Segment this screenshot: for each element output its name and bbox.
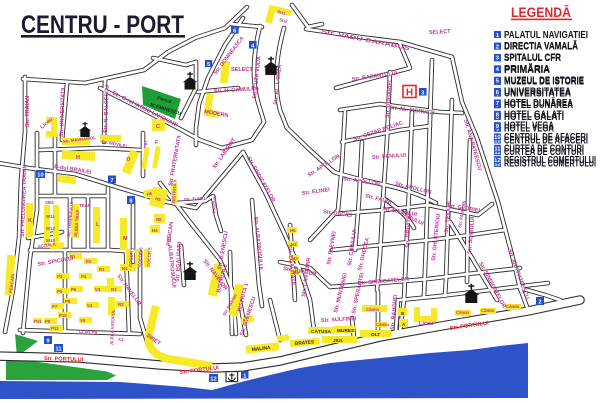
svg-text:R3: R3 [118,302,124,307]
svg-text:MUZEUL DE ISTORIE: MUZEUL DE ISTORIE [504,75,584,86]
svg-text:CURTEA DE CONTURI: CURTEA DE CONTURI [504,143,584,154]
svg-text:7: 7 [110,178,113,184]
svg-text:10: 10 [494,135,500,141]
svg-text:P11: P11 [34,319,42,324]
svg-text:PRIMĂRIA: PRIMĂRIA [504,64,550,75]
svg-text:PALATUL NAVIGATIEI: PALATUL NAVIGATIEI [504,30,588,41]
svg-text:Liceu: Liceu [419,321,433,327]
svg-text:11: 11 [494,147,501,153]
svg-text:Cămin: Cămin [481,308,495,313]
svg-text:N5: N5 [156,217,162,222]
svg-text:H: H [406,88,413,99]
svg-text:R1: R1 [99,267,105,272]
svg-text:DIRECTIA VAMALĂ: DIRECTIA VAMALĂ [504,41,578,52]
svg-text:TRAP: TRAP [79,203,91,208]
svg-text:HOTEL DUNĂREA: HOTEL DUNĂREA [504,98,573,109]
svg-text:W13: W13 [46,238,55,243]
svg-text:A1: A1 [118,337,124,342]
svg-text:SPITALUL CFR: SPITALUL CFR [504,53,561,64]
svg-text:C: C [156,124,160,130]
svg-text:OLT: OLT [371,332,380,338]
svg-text:N1: N1 [122,266,128,271]
svg-text:JIUL: JIUL [333,338,343,344]
svg-text:P8: P8 [65,299,71,304]
svg-text:K: K [28,218,32,224]
svg-text:12: 12 [210,377,216,383]
svg-text:Cr By Bg: Cr By Bg [79,329,98,334]
svg-text:Cămin: Cămin [506,304,520,309]
svg-text:CĂTUSA: CĂTUSA [311,328,332,335]
svg-text:P1: P1 [70,254,76,259]
svg-text:P7: P7 [52,304,58,309]
svg-text:MURES: MURES [337,328,355,334]
svg-text:Cămin: Cămin [366,307,380,312]
svg-text:V4: V4 [87,303,93,308]
svg-text:Str. TRAIAN: Str. TRAIAN [25,96,31,127]
svg-text:P2: P2 [86,259,92,264]
svg-text:P10: P10 [59,313,67,318]
svg-text:P4: P4 [81,274,87,279]
svg-text:M: M [123,236,128,242]
svg-text:H2: H2 [292,256,298,261]
svg-text:10: 10 [37,173,43,179]
svg-text:P6: P6 [71,287,77,292]
svg-text:CENTRUL DE AFACERI: CENTRUL DE AFACERI [504,132,588,143]
svg-text:H3: H3 [291,242,297,247]
svg-text:H: H [76,155,80,161]
svg-text:12: 12 [494,158,500,164]
svg-text:Cămin: Cămin [376,322,390,327]
svg-text:HOTEL VEGA: HOTEL VEGA [504,121,554,132]
svg-text:SELECT: SELECT [231,67,253,73]
svg-text:Cămin: Cămin [456,310,470,315]
svg-text:2: 2 [496,44,499,50]
svg-text:P9: P9 [45,319,51,324]
svg-text:P12: P12 [51,326,59,331]
svg-text:W11: W11 [46,214,55,219]
svg-text:V5: V5 [80,318,86,323]
svg-text:W12: W12 [46,226,55,231]
svg-text:SBS: SBS [45,200,54,205]
svg-text:H5: H5 [290,228,296,233]
svg-text:R2: R2 [111,287,117,292]
svg-text:HOTEL GALATI: HOTEL GALATI [504,109,564,120]
svg-text:7: 7 [496,101,499,107]
svg-text:2: 2 [538,300,541,306]
svg-text:SELECT: SELECT [429,29,452,36]
svg-text:CENTRU - PORT: CENTRU - PORT [21,11,184,39]
svg-text:P3: P3 [57,274,63,279]
svg-text:H4: H4 [152,228,158,233]
svg-text:LEGENDĂ: LEGENDĂ [511,5,571,20]
svg-text:E: E [144,141,148,147]
svg-text:REGISTRUL COMERTULUI: REGISTRUL COMERTULUI [504,155,596,166]
svg-text:P5: P5 [57,289,63,294]
svg-text:11: 11 [55,347,62,353]
svg-text:UNIVERSITATEA: UNIVERSITATEA [504,87,571,98]
svg-text:V3: V3 [95,287,101,292]
